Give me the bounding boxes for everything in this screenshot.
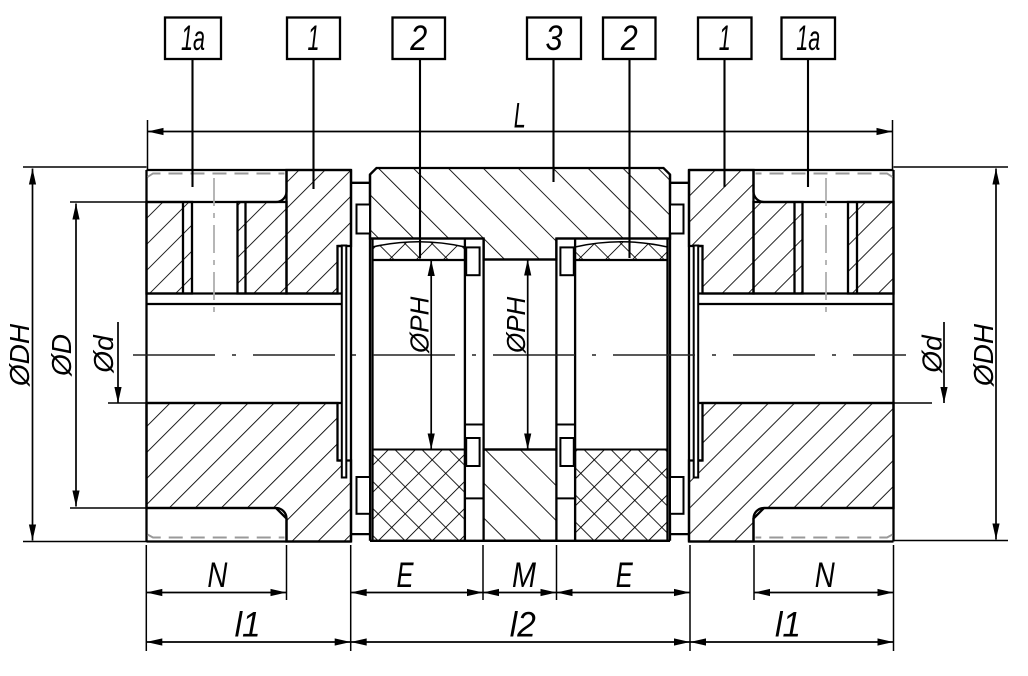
svg-text:L: L [514,97,526,136]
svg-text:Ød: Ød [917,334,948,374]
svg-text:ØD: ØD [46,334,77,377]
svg-text:N: N [207,556,228,595]
svg-text:ØDH: ØDH [4,323,35,387]
svg-text:l1: l1 [775,606,801,645]
svg-text:l2: l2 [510,606,536,645]
svg-text:ØPH: ØPH [405,296,435,354]
svg-text:M: M [512,556,537,595]
svg-text:N: N [815,556,836,595]
svg-text:Ød: Ød [88,334,119,374]
svg-text:E: E [616,556,633,595]
svg-text:2: 2 [620,19,638,58]
svg-text:ØDH: ØDH [968,323,999,387]
svg-text:1: 1 [719,19,731,58]
svg-text:ØPH: ØPH [501,296,531,354]
svg-text:1a: 1a [796,19,820,58]
svg-text:3: 3 [546,19,563,58]
svg-text:2: 2 [409,19,427,58]
svg-text:1: 1 [308,19,320,58]
svg-text:E: E [397,556,414,595]
svg-text:1a: 1a [181,19,205,58]
svg-text:l1: l1 [235,606,261,645]
